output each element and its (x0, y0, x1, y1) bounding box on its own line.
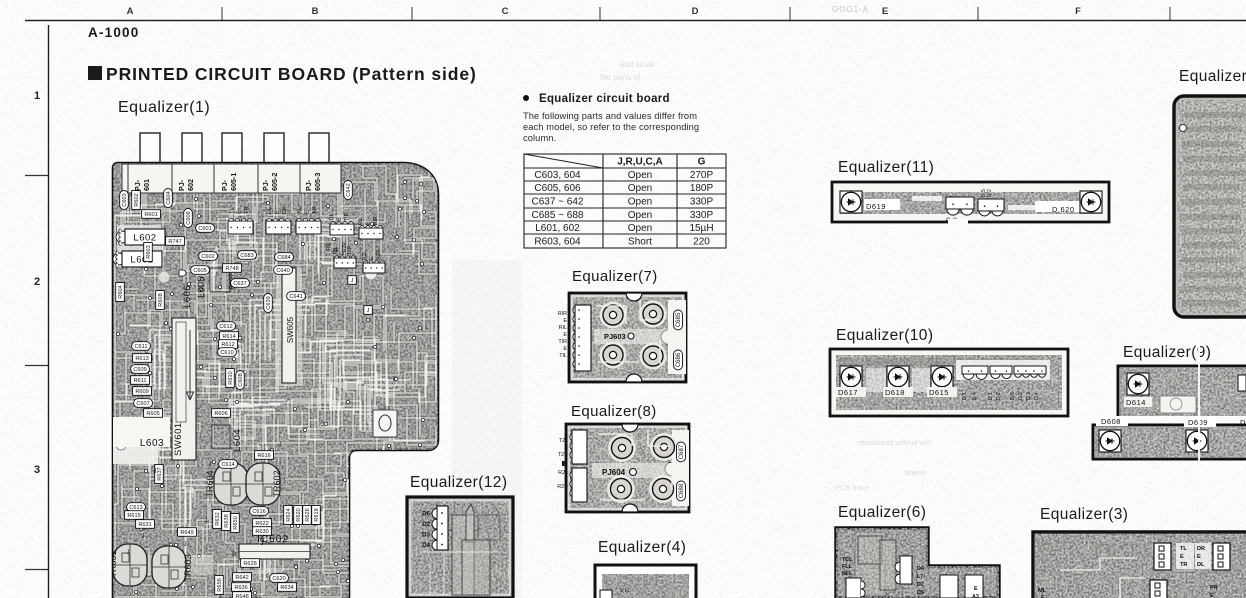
svg-text:TR604: TR604 (205, 470, 215, 497)
svg-text:D 2: D 2 (996, 392, 1002, 400)
svg-text:PJ604: PJ604 (602, 468, 626, 477)
svg-text:TIR: TIR (558, 339, 567, 345)
svg-text:Open: Open (628, 183, 652, 194)
svg-text:T2R: T2R (347, 245, 353, 255)
svg-text:R2R: R2R (376, 250, 382, 260)
svg-text:2: 2 (34, 276, 40, 288)
svg-text:L605: L605 (196, 276, 206, 298)
svg-text:R609: R609 (135, 389, 148, 395)
svg-text:R616: R616 (257, 453, 270, 459)
svg-text:D608: D608 (1101, 417, 1121, 426)
svg-text:R624: R624 (286, 508, 292, 521)
svg-text:C608: C608 (238, 373, 244, 386)
svg-text:R2R: R2R (557, 484, 568, 490)
svg-text:R602: R602 (134, 193, 140, 206)
svg-text:DR: DR (282, 206, 288, 214)
svg-text:Equalizer(1): Equalizer(1) (118, 99, 210, 116)
svg-text:602: 602 (186, 179, 195, 191)
svg-text:R605: R605 (146, 411, 159, 417)
svg-text:330P: 330P (690, 210, 714, 221)
svg-text:C639: C639 (266, 296, 272, 309)
svg-text:R614: R614 (222, 334, 235, 340)
svg-text:Short: Short (628, 237, 652, 248)
svg-text:C637: C637 (233, 281, 246, 287)
svg-text:R608: R608 (158, 293, 164, 306)
svg-text:L601, 602: L601, 602 (535, 223, 580, 234)
svg-text:TL: TL (229, 207, 235, 214)
svg-text:D3: D3 (422, 532, 430, 539)
svg-text:D 4: D 4 (1034, 392, 1040, 400)
svg-text:A-1000: A-1000 (88, 25, 139, 40)
svg-text:605-1: 605-1 (229, 173, 238, 191)
svg-text:E: E (366, 221, 372, 225)
svg-text:C603, 604: C603, 604 (534, 170, 581, 181)
svg-text:15µH: 15µH (689, 223, 713, 234)
svg-text:C: C (502, 6, 509, 17)
svg-text:180P: 180P (690, 183, 714, 194)
svg-text:C684: C684 (277, 255, 290, 261)
svg-text:C607: C607 (136, 401, 149, 407)
svg-text:E: E (337, 217, 343, 221)
svg-text:L7: L7 (917, 574, 923, 580)
svg-text:R636: R636 (234, 585, 247, 591)
svg-text:PRINTED CIRCUIT BOARD (Patt: PRINTED CIRCUIT BOARD (Pattern side) (106, 64, 477, 84)
svg-text:TCL: TCL (842, 557, 853, 563)
svg-text:TL: TL (1180, 546, 1187, 552)
svg-text:FLL: FLL (842, 564, 853, 570)
svg-text:R604: R604 (118, 285, 124, 298)
svg-text:R637: R637 (157, 467, 163, 480)
svg-text:D618: D618 (885, 388, 905, 397)
svg-text:E: E (237, 210, 243, 214)
svg-text:C604: C604 (166, 191, 172, 204)
svg-text:C685 ~ 688: C685 ~ 688 (532, 210, 584, 221)
svg-text:reproduced without writ: reproduced without writ (858, 440, 930, 447)
svg-text:ML: ML (1038, 588, 1047, 594)
svg-text:DR: DR (1197, 546, 1205, 552)
svg-text:DL: DL (1197, 562, 1205, 568)
svg-text:R622: R622 (255, 521, 268, 527)
svg-text:E: E (563, 318, 567, 324)
svg-text:R638: R638 (224, 514, 230, 527)
svg-text:D609: D609 (1188, 418, 1208, 427)
svg-text:R747: R747 (168, 239, 181, 245)
svg-text:R620: R620 (296, 508, 302, 521)
svg-text:D 2: D 2 (987, 189, 993, 197)
svg-text:Equalizer(12): Equalizer(12) (410, 474, 507, 491)
svg-text:J: J (261, 541, 264, 547)
svg-text:each model, so refer to the co: each model, so refer to the correspondin… (523, 122, 699, 132)
svg-text:R603, 604: R603, 604 (534, 237, 581, 248)
svg-text:D 1: D 1 (962, 392, 968, 400)
svg-text:3: 3 (34, 464, 40, 476)
svg-text:J: J (142, 534, 145, 540)
svg-text:J: J (205, 518, 208, 524)
svg-text:Equalizer(2): Equalizer(2) (1179, 68, 1246, 85)
svg-text:Equalizer(10): Equalizer(10) (836, 327, 933, 344)
svg-text:R632: R632 (215, 512, 221, 525)
svg-text:Open: Open (628, 170, 652, 181)
svg-text:D 1: D 1 (988, 392, 994, 400)
svg-text:DL: DL (267, 207, 273, 214)
svg-text:R618: R618 (314, 508, 320, 521)
svg-text:Open: Open (628, 210, 652, 221)
svg-text:D617: D617 (838, 388, 858, 397)
svg-text:R631: R631 (138, 522, 151, 528)
svg-text:TIL: TIL (559, 353, 567, 359)
svg-text:D619: D619 (866, 202, 886, 211)
svg-text:E: E (1197, 554, 1201, 560)
svg-text:E: E (563, 332, 567, 338)
svg-text:R626: R626 (305, 508, 311, 521)
svg-text:T2L: T2L (333, 246, 339, 255)
svg-text:J: J (127, 550, 130, 556)
svg-text:C642: C642 (346, 183, 352, 196)
svg-text:Equalizer(4): Equalizer(4) (598, 539, 686, 556)
svg-text:270P: 270P (690, 170, 714, 181)
svg-text:L604: L604 (232, 429, 243, 452)
svg-text:T2R: T2R (558, 452, 568, 458)
svg-text:R611: R611 (134, 378, 147, 384)
svg-text:PJ603: PJ603 (604, 332, 626, 341)
svg-text:R630: R630 (255, 529, 268, 535)
svg-text:Open: Open (628, 223, 652, 234)
svg-text:PR: PR (1210, 585, 1218, 591)
svg-text:TIR: TIR (344, 212, 350, 221)
svg-text:E: E (1210, 593, 1214, 598)
svg-text:R606: R606 (214, 411, 227, 417)
svg-text:J: J (279, 442, 282, 448)
svg-text:C611: C611 (135, 344, 148, 350)
svg-text:R2L: R2L (558, 470, 568, 476)
svg-text:L606: L606 (182, 285, 193, 308)
svg-text:C609: C609 (133, 367, 146, 373)
svg-text:R2L: R2L (362, 251, 368, 260)
svg-text:E: E (564, 445, 568, 451)
svg-text:PCB trace: PCB trace (835, 483, 869, 492)
svg-text:R2I: R2I (326, 242, 332, 250)
svg-text:D6: D6 (422, 511, 430, 518)
svg-text:J: J (154, 469, 157, 475)
svg-text:breise: breise (905, 468, 925, 477)
svg-text:R610: R610 (228, 371, 234, 384)
svg-text:D 4: D 4 (972, 392, 978, 400)
svg-text:1: 1 (34, 90, 40, 102)
svg-text:C688: C688 (679, 483, 685, 498)
svg-text:C640: C640 (276, 268, 289, 274)
svg-text:D 6: D 6 (1010, 392, 1016, 400)
svg-text:Equalizer(11): Equalizer(11) (838, 159, 934, 176)
svg-text:D: D (1240, 418, 1246, 427)
svg-text:E: E (1180, 554, 1184, 560)
svg-text:AL: AL (297, 207, 303, 214)
svg-text:C683: C683 (240, 253, 253, 259)
svg-text:Open: Open (628, 197, 652, 208)
svg-text:J: J (351, 278, 354, 284)
svg-text:D: D (692, 6, 699, 17)
svg-text:TIL: TIL (329, 213, 335, 221)
svg-text:C686: C686 (676, 352, 682, 367)
svg-text:D2: D2 (917, 582, 924, 588)
svg-text:C601: C601 (198, 226, 211, 232)
svg-text:E: E (275, 210, 281, 214)
svg-text:RIL: RIL (559, 325, 567, 331)
svg-text:J: J (367, 308, 370, 314)
svg-text:G: G (698, 157, 706, 168)
svg-text:330P: 330P (690, 197, 714, 208)
svg-text:R642: R642 (235, 575, 248, 581)
svg-text:L603: L603 (140, 438, 164, 449)
svg-text:C612: C612 (219, 324, 232, 330)
svg-text:RIR: RIR (558, 311, 567, 317)
svg-text:A3: A3 (972, 594, 979, 598)
svg-text:C614: C614 (221, 462, 234, 468)
svg-text:AR: AR (312, 206, 318, 214)
svg-text:D5: D5 (917, 590, 924, 596)
svg-text:E: E (564, 477, 568, 483)
svg-text:R748: R748 (225, 266, 238, 272)
svg-text:D614: D614 (1126, 398, 1146, 407)
svg-text:Equalizer(6): Equalizer(6) (838, 504, 926, 521)
svg-text:R628: R628 (243, 561, 256, 567)
svg-text:Equalizer(8): Equalizer(8) (571, 403, 657, 420)
svg-text:PJ-: PJ- (220, 179, 229, 191)
svg-text:Equalizer circuit board: Equalizer circuit board (539, 93, 670, 105)
svg-text:TR: TR (244, 207, 250, 214)
svg-text:J: J (209, 462, 212, 468)
svg-text:C620: C620 (272, 576, 285, 582)
svg-text:C687: C687 (679, 444, 685, 459)
svg-text:9: 9 (232, 551, 236, 558)
svg-text:D4: D4 (422, 542, 430, 549)
svg-text:605-2: 605-2 (270, 173, 279, 191)
svg-text:A: A (127, 6, 134, 17)
svg-text:C685: C685 (676, 312, 682, 327)
svg-text:and so all: and so all (620, 60, 654, 69)
svg-text:R634: R634 (280, 585, 293, 591)
svg-text:PJ-: PJ- (261, 179, 270, 191)
svg-text:D.620: D.620 (1052, 205, 1075, 214)
svg-text:D 3: D 3 (1026, 392, 1032, 400)
svg-text:PJ-: PJ- (133, 179, 142, 191)
svg-text:the parts of: the parts of (600, 73, 641, 82)
svg-text:C605: C605 (193, 268, 206, 274)
svg-text:PJ-: PJ- (177, 179, 186, 191)
svg-text:601: 601 (142, 179, 151, 191)
svg-text:E: E (974, 586, 978, 592)
svg-text:C605, 606: C605, 606 (534, 183, 581, 194)
svg-text:C602: C602 (201, 254, 214, 260)
svg-text:R648: R648 (235, 594, 248, 598)
svg-text:R649: R649 (180, 530, 193, 536)
svg-text:D4: D4 (917, 566, 924, 572)
svg-text:column.: column. (523, 133, 556, 143)
svg-text:D615: D615 (929, 388, 949, 397)
svg-text:R601: R601 (144, 212, 157, 218)
svg-text:TR603: TR603 (183, 554, 193, 581)
svg-text:C606: C606 (186, 211, 192, 224)
svg-text:B: B (312, 6, 319, 17)
svg-text:220: 220 (693, 237, 710, 248)
svg-text:NFL: NFL (842, 571, 853, 577)
svg-text:C616: C616 (252, 509, 265, 515)
svg-text:TR602: TR602 (272, 470, 282, 497)
svg-text:PJ-: PJ- (304, 179, 313, 191)
svg-text:TR: TR (1180, 562, 1187, 568)
svg-text:R613: R613 (135, 356, 148, 362)
svg-text:R650: R650 (233, 516, 239, 529)
svg-text:D2: D2 (422, 521, 430, 528)
svg-text:C603: C603 (122, 193, 128, 206)
svg-text:Equalizer(3): Equalizer(3) (1040, 506, 1128, 523)
svg-text:Equalizer(7): Equalizer(7) (572, 268, 658, 285)
svg-text:RIL: RIL (358, 217, 364, 225)
svg-text:J,R,U,C,A: J,R,U,C,A (617, 157, 663, 168)
svg-text:E: E (563, 346, 567, 352)
svg-text:R612: R612 (221, 342, 234, 348)
svg-text:E: E (305, 210, 311, 214)
svg-text:R603: R603 (146, 245, 152, 258)
svg-text:C637 ~ 642: C637 ~ 642 (532, 197, 584, 208)
svg-text:VIL: VIL (620, 588, 631, 594)
svg-text:C641: C641 (289, 294, 302, 300)
svg-text:SW601: SW601 (173, 422, 184, 456)
svg-text:R615: R615 (127, 513, 140, 519)
svg-text:RIR: RIR (373, 216, 379, 225)
svg-text:605-3: 605-3 (313, 173, 322, 191)
svg-text:D 2: D 2 (1018, 392, 1024, 400)
svg-text:SW605: SW605 (286, 316, 295, 343)
svg-text:E: E (882, 6, 888, 17)
svg-text:C610: C610 (220, 350, 233, 356)
svg-text:C613: C613 (129, 505, 142, 511)
svg-text:L602: L602 (133, 233, 156, 244)
svg-text:R656: R656 (217, 578, 223, 591)
svg-text:T2L: T2L (559, 438, 568, 444)
svg-text:The following parts and values: The following parts and values differ fr… (523, 111, 697, 121)
svg-text:F: F (1075, 6, 1081, 17)
svg-text:OOO1-A: OOO1-A (832, 5, 869, 14)
svg-text:J: J (184, 542, 187, 548)
